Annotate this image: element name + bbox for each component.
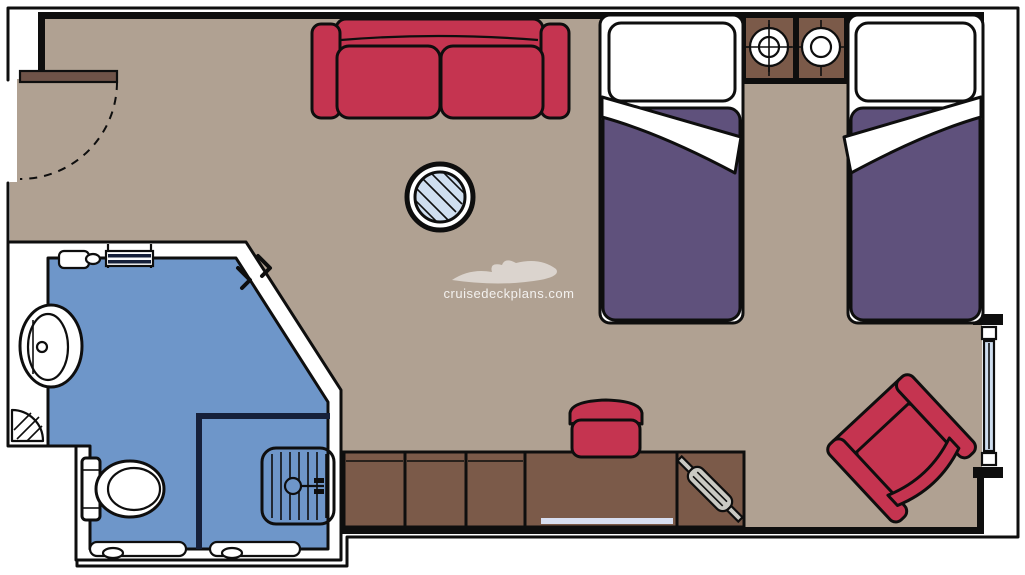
cabinet-1 (344, 452, 405, 527)
bed-left-pillow (609, 23, 735, 101)
twin-bed-left (600, 15, 743, 323)
sofa-seat-left (337, 46, 440, 118)
floor-plan-canvas: cruisedeckplans.com (0, 0, 1025, 575)
two-seat-sofa (312, 19, 569, 118)
bathroom-grab-bar-left (90, 542, 186, 558)
wall-entry-stub (38, 12, 45, 80)
twin-bed-right (844, 15, 983, 323)
sink-rim (20, 305, 82, 387)
sink-drain (37, 342, 47, 352)
toilet (82, 458, 164, 520)
nightstands (741, 12, 849, 84)
bathroom-grab-bar-right (210, 542, 300, 558)
watermark-text: cruisedeckplans.com (444, 286, 575, 301)
stool (570, 400, 642, 457)
bed-right-pillow (856, 23, 975, 101)
wall-right-lower (977, 469, 984, 534)
desk-console (344, 452, 747, 527)
round-glass-table (407, 164, 473, 230)
shower-drain (285, 478, 301, 494)
shower-handle-a (314, 478, 324, 483)
cabinet-3 (466, 452, 525, 527)
sofa-armrest-right (541, 24, 569, 118)
sofa-seat-right (441, 46, 543, 118)
window-latch-top (982, 327, 996, 339)
toilet-bowl (96, 461, 164, 517)
window-cap-bottom (973, 467, 1003, 478)
cabinet-2 (405, 452, 466, 527)
desk-drawer-strip (541, 518, 673, 524)
door-leaf (20, 71, 117, 82)
washbasin (20, 305, 82, 387)
shower-handle-b (314, 489, 324, 494)
cabin-floor-plan: cruisedeckplans.com (0, 0, 1025, 575)
stool-seat (572, 420, 640, 457)
desk-top (525, 452, 677, 527)
window-latch-bottom (982, 453, 996, 465)
